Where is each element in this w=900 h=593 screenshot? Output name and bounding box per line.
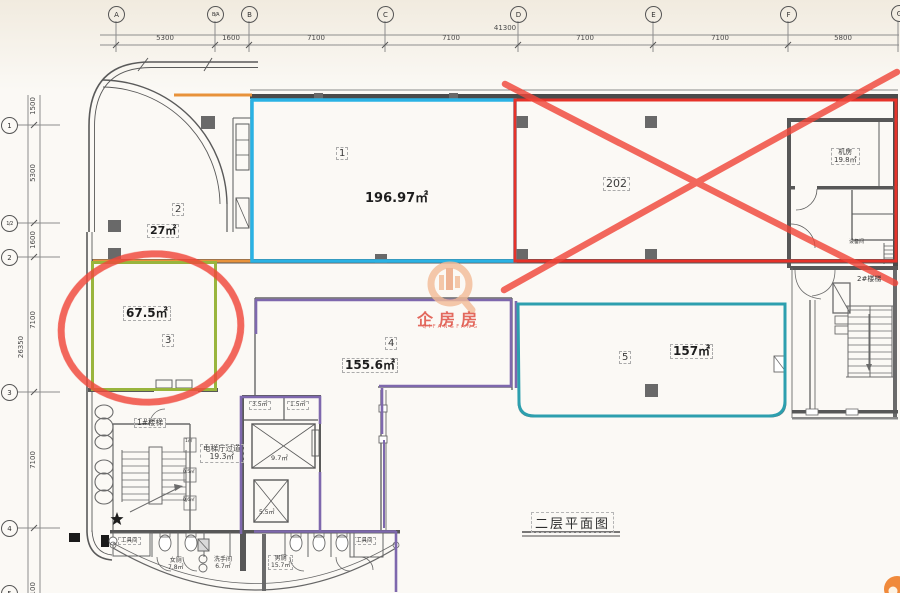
axis-circle-4: 4 bbox=[1, 520, 18, 537]
axis-circle-3: 3 bbox=[1, 384, 18, 401]
duct-c-label: 0.6㎡ bbox=[183, 499, 195, 504]
axis-circle-d: D bbox=[510, 6, 527, 23]
axis-circle-1-2: 1/2 bbox=[1, 215, 18, 232]
room-5-number: 5 bbox=[619, 351, 631, 364]
tool-room-left-label: 工具间 bbox=[118, 537, 141, 545]
dim-left-5: 7100 bbox=[30, 451, 38, 469]
tool-room-right-label: 工具间 bbox=[353, 537, 376, 545]
dim-top-total: 41300 bbox=[494, 25, 516, 33]
room-1-area: 196.97㎡ bbox=[365, 192, 428, 206]
stair-2 bbox=[790, 266, 898, 420]
dim-top-2: 1600 bbox=[222, 35, 240, 43]
dim-left-1: 1500 bbox=[30, 97, 38, 115]
columns bbox=[108, 93, 658, 397]
washroom-label: 洗手间 6.7㎡ bbox=[214, 557, 232, 570]
room-5-area: 157㎡ bbox=[670, 344, 713, 359]
axis-letter: C bbox=[383, 11, 388, 19]
shaft-a-label: 3.5㎡ bbox=[249, 401, 271, 410]
room-4-outline bbox=[241, 300, 516, 592]
room-202-number: 202 bbox=[603, 177, 630, 191]
axis-letter: B/A bbox=[212, 12, 219, 18]
male-wc-label: 男厕 15.7㎡ bbox=[268, 555, 293, 570]
dim-top-4: 7100 bbox=[442, 35, 460, 43]
axis-number: 2 bbox=[7, 254, 11, 262]
room-4-number: 4 bbox=[385, 337, 397, 350]
axis-number: 5 bbox=[7, 590, 11, 593]
washroom-area: 6.7㎡ bbox=[214, 564, 232, 571]
corner-logo bbox=[884, 576, 900, 593]
dim-top-7: 5800 bbox=[834, 35, 852, 43]
axis-number: 1/2 bbox=[6, 221, 13, 227]
elevator-core bbox=[243, 396, 320, 532]
axis-circle-b: B bbox=[241, 6, 258, 23]
grid-ticks bbox=[31, 42, 791, 531]
axis-circle-a: A bbox=[108, 6, 125, 23]
male-wc-area: 15.7㎡ bbox=[271, 563, 290, 570]
duct-a-label: 1㎡ bbox=[185, 440, 192, 445]
watermark-subtext: QIFANGFANG bbox=[422, 324, 479, 330]
room-1-number: 1 bbox=[336, 147, 348, 160]
room-3-outline bbox=[93, 263, 216, 390]
female-wc-label: 女厕 7.8㎡ bbox=[168, 558, 184, 571]
machine-room-area: 19.8㎡ bbox=[834, 157, 857, 165]
axis-number: 1 bbox=[7, 122, 11, 130]
dim-left-4: 7100 bbox=[30, 311, 38, 329]
dim-left-3: 1600 bbox=[30, 231, 38, 249]
room-2-area: 27㎡ bbox=[147, 224, 179, 238]
axis-number: 3 bbox=[7, 389, 11, 397]
elevator-main-area: 9.7㎡ bbox=[271, 455, 288, 462]
room-3-area: 67.5㎡ bbox=[123, 306, 171, 321]
red-annotations bbox=[54, 72, 897, 411]
female-wc-area: 7.8㎡ bbox=[168, 565, 184, 572]
red-circle-annotation bbox=[54, 245, 248, 411]
machine-room-label: 机房 19.8㎡ bbox=[831, 148, 860, 165]
dim-top-6: 7100 bbox=[711, 35, 729, 43]
axis-circle-1: 1 bbox=[1, 117, 18, 134]
axis-circle-2: 2 bbox=[1, 249, 18, 266]
elevator-small-area: 5.5㎡ bbox=[259, 510, 275, 517]
room-4-area: 155.6㎡ bbox=[342, 358, 398, 373]
axis-circle-ba: B/A bbox=[207, 6, 224, 23]
axis-circle-f: F bbox=[780, 6, 797, 23]
floorplan-drawing bbox=[0, 0, 900, 593]
axis-letter: A bbox=[114, 11, 119, 19]
stair-1-label: 1#楼梯 bbox=[134, 418, 166, 428]
axis-letter: D bbox=[516, 11, 521, 19]
facade-pods bbox=[95, 405, 113, 504]
floorplan-canvas: A B/A B C D E F G 1 1/2 2 3 4 5 5300 160… bbox=[0, 0, 900, 593]
shaft-b-label: 1.5㎡ bbox=[287, 401, 309, 410]
building-walls bbox=[87, 90, 898, 560]
axis-circle-c: C bbox=[377, 6, 394, 23]
dim-top-5: 7100 bbox=[576, 35, 594, 43]
axis-letter: F bbox=[786, 11, 790, 19]
dim-top-3: 7100 bbox=[307, 35, 325, 43]
axis-number: 4 bbox=[7, 525, 11, 533]
equipment-room-label: 设备间 bbox=[849, 240, 864, 246]
room-5-outline bbox=[518, 304, 785, 416]
axis-circle-e: E bbox=[645, 6, 662, 23]
axis-letter: B bbox=[247, 11, 252, 19]
stair-2-label: 2#楼梯 bbox=[857, 276, 881, 284]
duct-b-label: 0.5㎡ bbox=[183, 471, 195, 476]
plan-title: 二层平面图 bbox=[531, 512, 614, 533]
elevator-lobby-label: 电梯厅过道 19.3㎡ bbox=[200, 444, 244, 463]
dim-left-total: 26350 bbox=[18, 336, 26, 358]
machine-room bbox=[787, 118, 898, 268]
dim-top-1: 5300 bbox=[156, 35, 174, 43]
room-1-outline bbox=[252, 100, 515, 261]
elevator-lobby-area: 19.3㎡ bbox=[203, 453, 241, 461]
watermark-logo bbox=[431, 265, 472, 310]
axis-letter: E bbox=[651, 11, 655, 19]
room-2-number: 2 bbox=[172, 203, 184, 216]
room-3-number: 3 bbox=[162, 334, 174, 347]
dim-left-2: 5300 bbox=[30, 164, 38, 182]
dim-left-6: 7100 bbox=[30, 582, 38, 593]
